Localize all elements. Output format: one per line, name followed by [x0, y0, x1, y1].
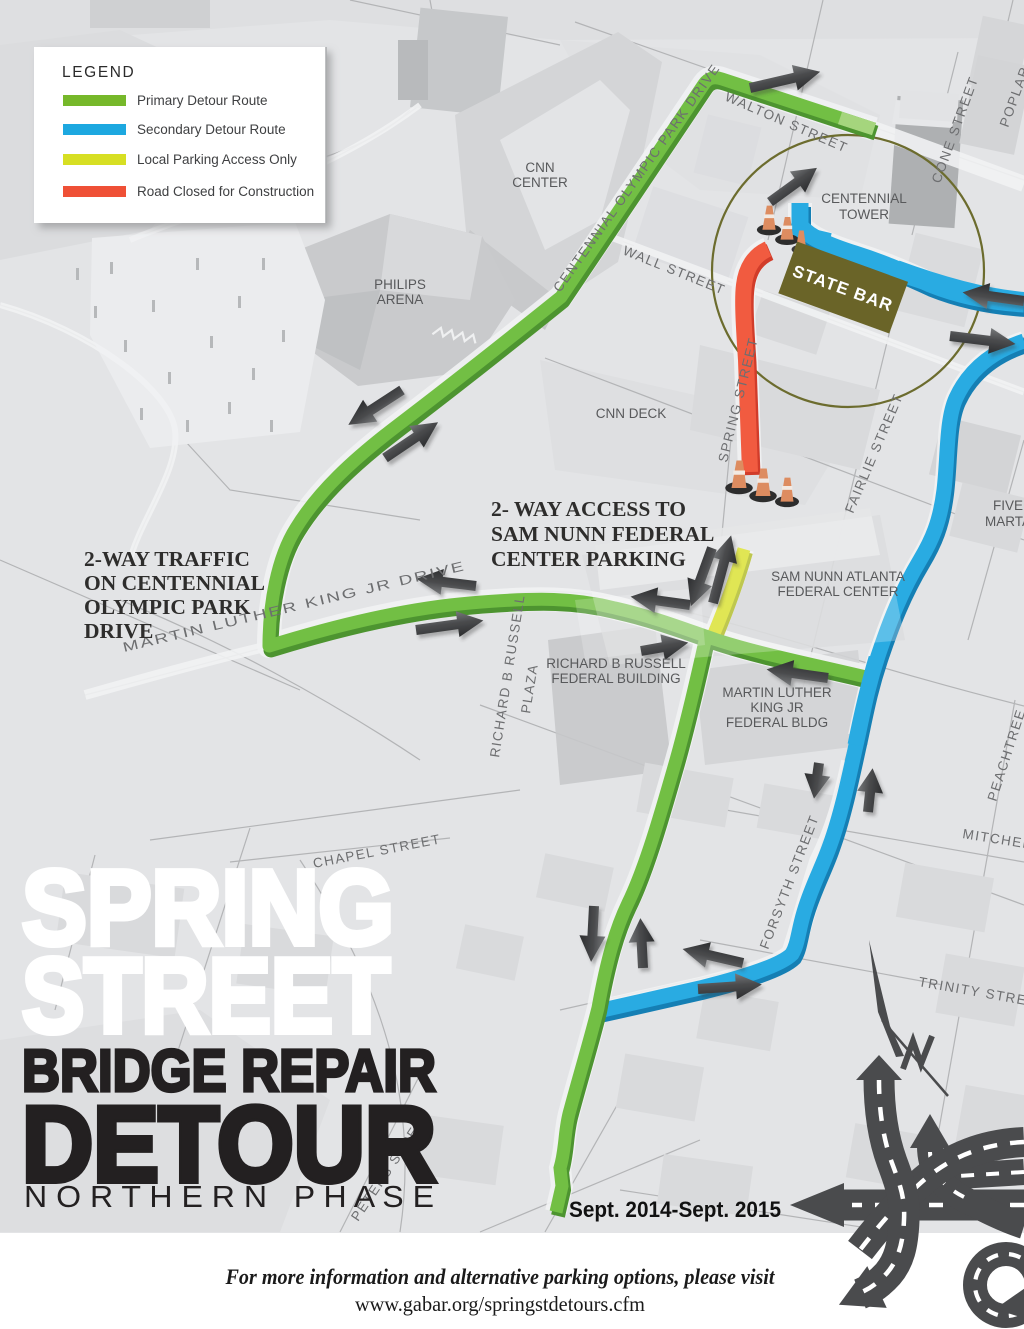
svg-text:ON CENTENNIAL: ON CENTENNIAL — [84, 571, 265, 595]
svg-text:MARTIN LUTHER: MARTIN LUTHER — [722, 685, 832, 700]
svg-text:CNN: CNN — [525, 160, 554, 175]
svg-text:FEDERAL BUILDING: FEDERAL BUILDING — [551, 671, 680, 686]
svg-text:2- WAY ACCESS TO: 2- WAY ACCESS TO — [491, 497, 686, 521]
svg-text:CENTER PARKING: CENTER PARKING — [491, 547, 686, 571]
svg-text:TOWER: TOWER — [839, 207, 889, 222]
svg-text:FEDERAL BLDG: FEDERAL BLDG — [726, 715, 828, 730]
svg-text:Primary Detour Route: Primary Detour Route — [137, 93, 268, 108]
svg-text:N O R T H E R N P H A S E: N O R T H E R N P H A S E — [24, 1179, 434, 1214]
svg-text:FIVE P: FIVE P — [993, 498, 1024, 513]
svg-text:CNN DECK: CNN DECK — [596, 406, 667, 421]
svg-text:www.gabar.org/springstdetours.: www.gabar.org/springstdetours.cfm — [355, 1292, 645, 1316]
svg-text:2-WAY TRAFFIC: 2-WAY TRAFFIC — [84, 547, 250, 571]
svg-text:DRIVE: DRIVE — [84, 619, 153, 643]
svg-text:Local Parking Access Only: Local Parking Access Only — [137, 152, 297, 167]
svg-text:RICHARD B RUSSELL: RICHARD B RUSSELL — [546, 656, 686, 671]
svg-text:SAM NUNN FEDERAL: SAM NUNN FEDERAL — [491, 522, 714, 546]
svg-text:KING JR: KING JR — [750, 700, 804, 715]
svg-text:CENTER: CENTER — [512, 175, 568, 190]
svg-text:LEGEND: LEGEND — [62, 64, 135, 81]
svg-text:Road Closed for Construction: Road Closed for Construction — [137, 184, 314, 199]
svg-text:Secondary Detour Route: Secondary Detour Route — [137, 122, 286, 137]
svg-text:SAM NUNN ATLANTA: SAM NUNN ATLANTA — [771, 569, 905, 584]
svg-text:For more information and alter: For more information and alternative par… — [225, 1264, 776, 1289]
svg-text:Sept. 2014-Sept. 2015: Sept. 2014-Sept. 2015 — [569, 1197, 781, 1222]
svg-text:MARTA S: MARTA S — [985, 514, 1024, 529]
svg-text:OLYMPIC PARK: OLYMPIC PARK — [84, 595, 251, 619]
svg-text:ARENA: ARENA — [377, 292, 424, 307]
svg-text:PHILIPS: PHILIPS — [374, 277, 426, 292]
svg-text:CENTENNIAL: CENTENNIAL — [821, 191, 907, 206]
svg-text:FEDERAL CENTER: FEDERAL CENTER — [777, 584, 898, 599]
